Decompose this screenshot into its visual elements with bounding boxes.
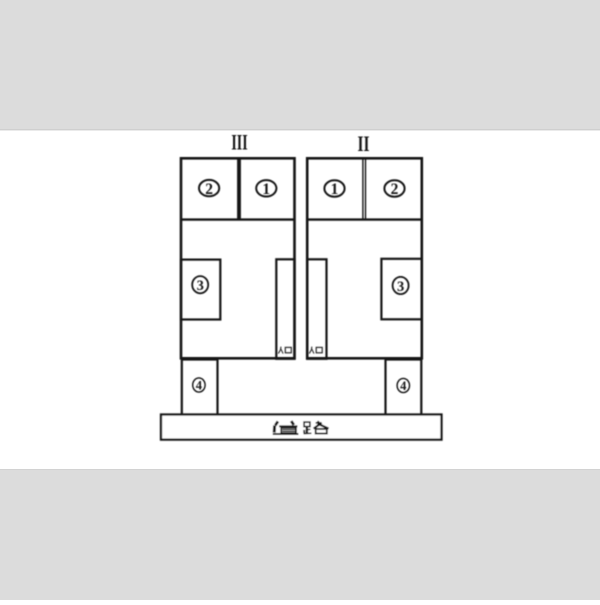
svg-text:4: 4: [196, 379, 203, 393]
svg-text:II: II: [358, 131, 370, 156]
svg-text:1: 1: [262, 181, 270, 198]
svg-text:3: 3: [397, 279, 404, 295]
svg-text:2: 2: [205, 181, 213, 198]
svg-text:III: III: [231, 129, 247, 154]
svg-text:2: 2: [391, 181, 399, 198]
svg-text:4: 4: [400, 379, 407, 393]
svg-text:1: 1: [331, 181, 339, 198]
svg-text:3: 3: [197, 278, 204, 294]
